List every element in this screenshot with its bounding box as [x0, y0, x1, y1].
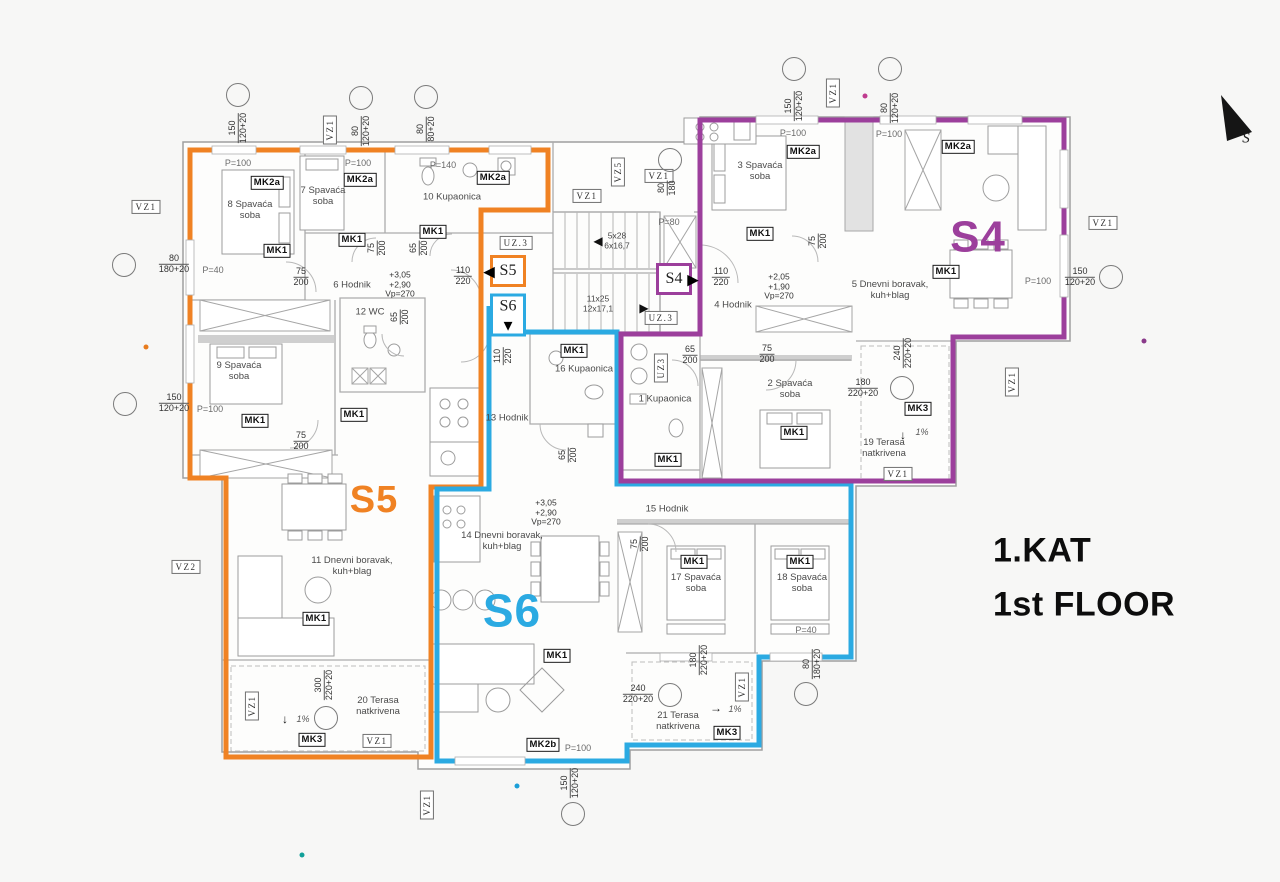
apartment-letter-s5: S5: [350, 479, 398, 523]
shaft-tag: VZ1: [420, 791, 434, 820]
dimension-bubble: [314, 706, 338, 730]
stair-dimension-label: 11x25 12x17,1: [583, 294, 613, 313]
dimension-label: 8080+20: [416, 116, 436, 141]
joinery-tag: MK1: [303, 612, 330, 626]
marker-dot: [300, 853, 305, 858]
shaft-tag: VZ1: [1089, 216, 1118, 230]
floor-title: 1.KAT 1st FLOOR: [993, 524, 1175, 633]
apartment-letter-s4: S4: [950, 213, 1006, 264]
dimension-label: 110220: [493, 347, 513, 365]
area-label: P=100: [225, 158, 251, 168]
dimension-label: 80180+20: [802, 649, 822, 679]
shaft-tag: VZ1: [323, 116, 337, 145]
dimension-bubble: [1099, 265, 1123, 289]
dimension-bubble: [414, 85, 438, 109]
shaft-tag: UZ.3: [500, 236, 533, 250]
joinery-tag: MK2a: [477, 171, 510, 185]
room-label: 4 Hodnik: [714, 301, 752, 312]
joinery-tag: MK1: [787, 555, 814, 569]
dimension-label: 150120+20: [1065, 267, 1095, 287]
area-label: P=100: [876, 129, 902, 139]
north-label: S: [1242, 130, 1250, 147]
joinery-tag: MK2a: [344, 173, 377, 187]
apartment-letter-s6: S6: [483, 585, 541, 638]
dimension-bubble: [658, 683, 682, 707]
joinery-tag: MK1: [339, 233, 366, 247]
joinery-tag: MK2a: [942, 140, 975, 154]
room-label: 16 Kupaonica: [555, 365, 613, 376]
joinery-tag: MK3: [905, 402, 932, 416]
stair-dimension-label: 5x28 6x16,7: [604, 231, 630, 250]
shaft-tag: VZ1: [826, 79, 840, 108]
dimension-label: 150120+20: [159, 393, 189, 413]
dimension-label: 180220+20: [848, 378, 878, 398]
level-label: +3,05 +2,90 Vp=270: [385, 271, 415, 300]
room-label: 10 Kupaonica: [423, 193, 481, 204]
area-label: P=140: [430, 160, 456, 170]
dimension-label: 75200: [808, 233, 828, 248]
dimension-label: 80120+20: [880, 93, 900, 123]
dimension-bubble: [658, 148, 682, 172]
room-label: 11 Dnevni boravak, kuh+blag: [311, 556, 392, 578]
room-label: 5 Dnevni boravak, kuh+blag: [852, 280, 929, 302]
dimension-label: 65200: [409, 240, 429, 255]
room-label: 9 Spavaća soba: [217, 361, 262, 383]
entry-arrow-s5: ◀: [483, 263, 495, 280]
marker-dot: [863, 94, 868, 99]
dimension-bubble: [349, 86, 373, 110]
room-label: 13 Hodnik: [486, 414, 529, 425]
dimension-label: 180220+20: [689, 645, 709, 675]
entry-marker-s5: S5: [490, 255, 526, 287]
joinery-tag: MK1: [655, 453, 682, 467]
area-label: P=100: [345, 158, 371, 168]
dimension-label: 75200: [630, 536, 650, 551]
direction-arrow-icon: ◀: [593, 235, 602, 249]
room-label: 17 Spavaća soba: [671, 573, 721, 595]
joinery-tag: MK2a: [251, 176, 284, 190]
joinery-tag: MK2b: [526, 738, 559, 752]
dimension-label: 300220+20: [314, 670, 334, 700]
room-label: 18 Spavaća soba: [777, 573, 827, 595]
dimension-label: 110220: [712, 267, 730, 287]
room-label: 3 Spavaća soba: [738, 161, 783, 183]
slope-label: 1%: [915, 427, 928, 437]
joinery-tag: MK1: [420, 225, 447, 239]
dimension-label: 75200: [759, 344, 774, 364]
room-label: 12 WC: [355, 308, 384, 319]
area-label: P=100: [1025, 276, 1051, 286]
dimension-label: 80180: [657, 180, 677, 195]
joinery-tag: MK1: [341, 408, 368, 422]
marker-dot: [1142, 339, 1147, 344]
area-label: P=100: [197, 404, 223, 414]
label-layer: 150120+20VZ180120+208080+20150120+20VZ18…: [0, 0, 1280, 882]
joinery-tag: MK1: [747, 227, 774, 241]
area-label: P=40: [202, 265, 223, 275]
dimension-bubble: [794, 682, 818, 706]
joinery-tag: MK3: [714, 726, 741, 740]
area-label: P=100: [565, 743, 591, 753]
dimension-bubble: [782, 57, 806, 81]
dimension-label: 150120+20: [560, 768, 580, 798]
shaft-tag: VZ2: [172, 560, 201, 574]
dimension-bubble: [113, 392, 137, 416]
marker-dot: [144, 345, 149, 350]
dimension-label: 240220+20: [893, 338, 913, 368]
shaft-tag: VZ1: [573, 189, 602, 203]
dimension-label: 80180+20: [159, 254, 189, 274]
entry-arrow-s6: ▼: [501, 317, 516, 334]
shaft-tag: VZ1: [735, 673, 749, 702]
joinery-tag: MK1: [933, 265, 960, 279]
dimension-label: 75200: [293, 431, 308, 451]
joinery-tag: MK1: [242, 414, 269, 428]
slope-label: 1%: [296, 714, 309, 724]
room-label: 1 Kupaonica: [639, 395, 692, 406]
dimension-bubble: [226, 83, 250, 107]
dimension-label: 150120+20: [784, 91, 804, 121]
entry-arrow-s4: ▶: [687, 271, 699, 288]
room-label: 14 Dnevni boravak, kuh+blag: [461, 531, 543, 553]
shaft-tag: VZ5: [611, 158, 625, 187]
dimension-label: 65200: [558, 447, 578, 462]
dimension-label: 65200: [682, 345, 697, 365]
dimension-bubble: [890, 376, 914, 400]
room-label: 2 Spavaća soba: [768, 379, 813, 401]
shaft-tag: VZ1: [884, 467, 913, 481]
slope-label: 1%: [728, 704, 741, 714]
dimension-label: 65200: [390, 309, 410, 324]
area-label: P=80: [658, 217, 679, 227]
room-label: 15 Hodnik: [646, 505, 689, 516]
dimension-bubble: [561, 802, 585, 826]
level-label: +2,05 +1,90 Vp=270: [764, 273, 794, 302]
room-label: 8 Spavaća soba: [228, 200, 273, 222]
dimension-bubble: [878, 57, 902, 81]
joinery-tag: MK3: [299, 733, 326, 747]
joinery-tag: MK1: [561, 344, 588, 358]
area-label: P=100: [780, 128, 806, 138]
dimension-bubble: [112, 253, 136, 277]
shaft-tag: UZ3: [654, 354, 668, 383]
dimension-label: 75200: [293, 267, 308, 287]
shaft-tag: VZ1: [132, 200, 161, 214]
level-label: +3,05 +2,90 Vp=270: [531, 499, 561, 528]
dimension-label: 150120+20: [228, 113, 248, 143]
direction-arrow-icon: →: [710, 702, 722, 716]
joinery-tag: MK1: [544, 649, 571, 663]
joinery-tag: MK1: [264, 244, 291, 258]
room-label: 7 Spavaća soba: [301, 186, 346, 208]
dimension-label: 80120+20: [351, 116, 371, 146]
room-label: 21 Terasa natkrivena: [656, 711, 700, 733]
shaft-tag: VZ1: [245, 692, 259, 721]
room-label: 20 Terasa natkrivena: [356, 696, 400, 718]
floorplan-canvas: 150120+20VZ180120+208080+20150120+20VZ18…: [0, 0, 1280, 882]
room-label: 19 Terasa natkrivena: [862, 438, 906, 460]
area-label: P=40: [795, 625, 816, 635]
shaft-tag: VZ1: [363, 734, 392, 748]
room-label: 6 Hodnik: [333, 281, 371, 292]
joinery-tag: MK1: [781, 426, 808, 440]
marker-dot: [515, 784, 520, 789]
dimension-label: 110220: [454, 266, 472, 286]
dimension-label: 75200: [367, 240, 387, 255]
joinery-tag: MK1: [681, 555, 708, 569]
joinery-tag: MK2a: [787, 145, 820, 159]
shaft-tag: UZ.3: [645, 311, 678, 325]
dimension-label: 240220+20: [623, 684, 653, 704]
direction-arrow-icon: ↓: [282, 713, 288, 727]
shaft-tag: VZ1: [1005, 368, 1019, 397]
